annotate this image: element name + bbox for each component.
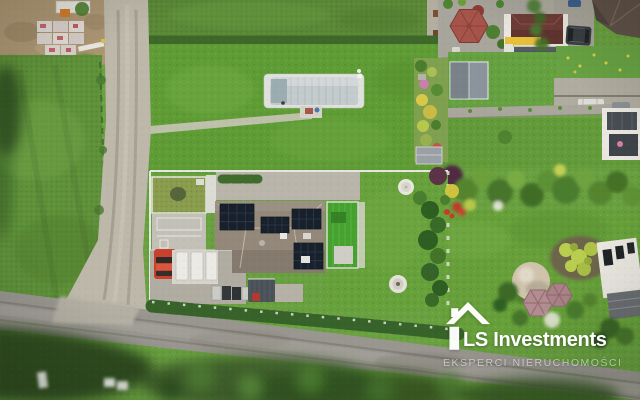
aerial-photo: LS Investments EKSPERCI NIERUCHOMOŚCI <box>0 0 640 400</box>
scene-svg <box>0 0 640 400</box>
vignette <box>0 0 640 400</box>
